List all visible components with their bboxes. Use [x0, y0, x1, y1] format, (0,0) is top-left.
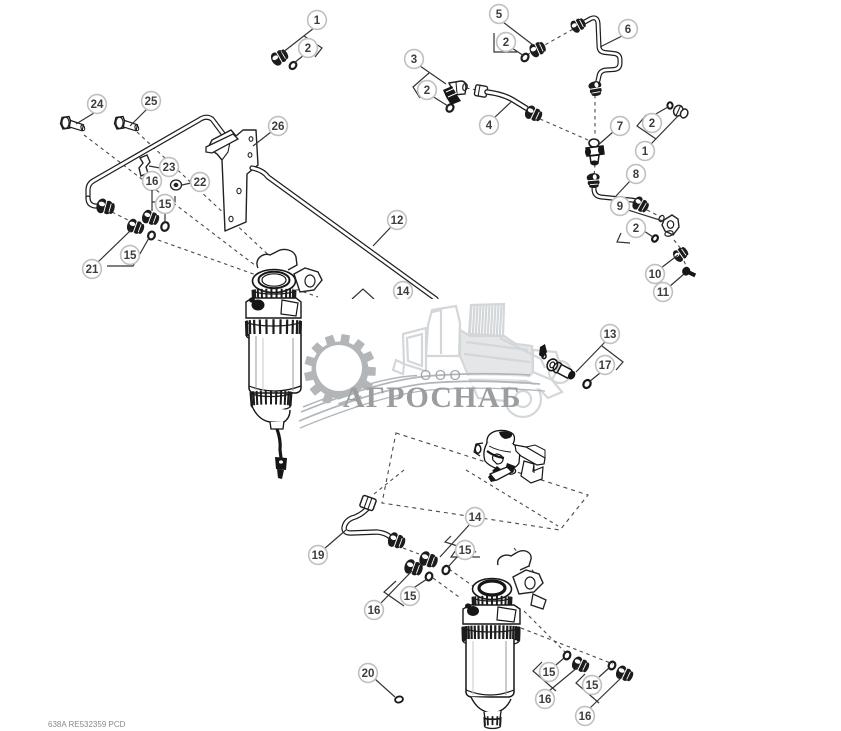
svg-text:2: 2	[503, 37, 509, 49]
svg-text:22: 22	[194, 177, 207, 189]
svg-text:6: 6	[625, 24, 631, 36]
svg-text:17: 17	[599, 360, 612, 372]
svg-text:21: 21	[86, 264, 99, 276]
svg-text:4: 4	[486, 120, 493, 132]
svg-text:1: 1	[642, 146, 649, 158]
svg-text:23: 23	[163, 162, 176, 174]
svg-text:15: 15	[159, 199, 172, 211]
svg-text:7: 7	[617, 121, 623, 133]
svg-text:8: 8	[633, 169, 640, 181]
svg-text:16: 16	[146, 176, 159, 188]
svg-text:20: 20	[362, 668, 375, 680]
svg-text:2: 2	[305, 43, 311, 55]
svg-text:5: 5	[496, 9, 503, 21]
svg-text:24: 24	[91, 99, 104, 111]
svg-text:16: 16	[579, 711, 592, 723]
svg-text:9: 9	[617, 201, 623, 213]
svg-text:15: 15	[586, 680, 599, 692]
svg-text:14: 14	[469, 512, 482, 524]
svg-text:14: 14	[397, 286, 410, 298]
svg-text:11: 11	[657, 287, 670, 299]
svg-text:19: 19	[312, 550, 325, 562]
svg-text:26: 26	[272, 121, 285, 133]
svg-text:АГРОСНАБ: АГРОСНАБ	[343, 381, 522, 414]
svg-text:2: 2	[633, 223, 639, 235]
svg-text:2: 2	[424, 85, 430, 97]
svg-text:10: 10	[649, 269, 662, 281]
svg-text:16: 16	[539, 694, 552, 706]
svg-text:2: 2	[649, 118, 655, 130]
svg-text:13: 13	[604, 329, 617, 341]
svg-text:25: 25	[145, 96, 158, 108]
svg-text:638A RE532359 PCD: 638A RE532359 PCD	[48, 720, 126, 729]
svg-text:3: 3	[411, 54, 417, 66]
svg-text:15: 15	[543, 667, 556, 679]
svg-text:15: 15	[124, 250, 137, 262]
svg-text:15: 15	[404, 591, 417, 603]
svg-text:15: 15	[459, 545, 472, 557]
svg-text:12: 12	[391, 215, 404, 227]
svg-text:16: 16	[368, 605, 381, 617]
svg-text:1: 1	[314, 15, 321, 27]
